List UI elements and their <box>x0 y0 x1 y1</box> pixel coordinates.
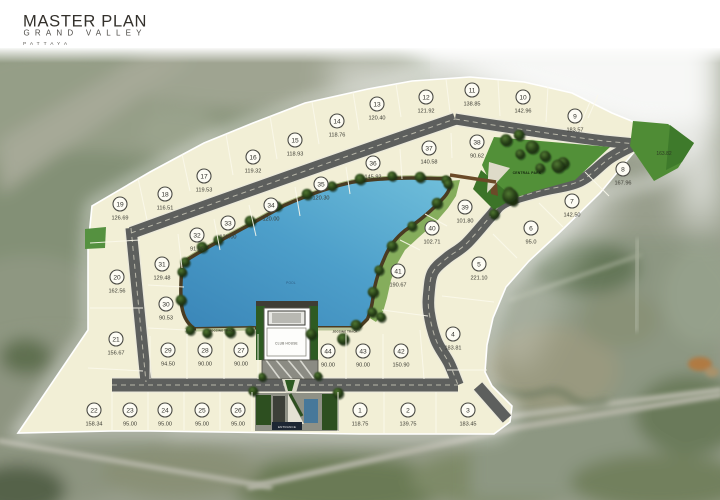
svg-text:138.85: 138.85 <box>463 102 480 108</box>
svg-text:90.00: 90.00 <box>356 363 370 369</box>
svg-text:118.76: 118.76 <box>329 133 346 139</box>
svg-text:7: 7 <box>570 198 574 205</box>
svg-text:156.67: 156.67 <box>107 351 124 357</box>
svg-text:5: 5 <box>477 261 481 268</box>
svg-text:94.50: 94.50 <box>161 362 175 368</box>
svg-text:167.96: 167.96 <box>614 181 631 187</box>
svg-text:22: 22 <box>90 407 98 414</box>
svg-text:19: 19 <box>116 201 124 208</box>
svg-text:40: 40 <box>428 225 436 232</box>
svg-text:95.00: 95.00 <box>195 422 209 428</box>
svg-text:36: 36 <box>369 160 377 167</box>
svg-text:11: 11 <box>469 87 476 94</box>
svg-text:8: 8 <box>621 166 625 173</box>
svg-text:221.10: 221.10 <box>470 276 487 282</box>
svg-text:42: 42 <box>397 348 405 355</box>
svg-text:18: 18 <box>161 191 169 198</box>
svg-text:21: 21 <box>112 336 120 343</box>
svg-text:101.80: 101.80 <box>456 219 473 225</box>
svg-text:10: 10 <box>519 94 527 101</box>
svg-text:24: 24 <box>161 407 169 414</box>
svg-text:6: 6 <box>529 225 533 232</box>
svg-text:14: 14 <box>333 118 341 125</box>
svg-text:90.53: 90.53 <box>159 316 173 322</box>
svg-text:95.00: 95.00 <box>158 422 172 428</box>
svg-text:35: 35 <box>317 181 325 188</box>
svg-text:95.00: 95.00 <box>231 422 245 428</box>
svg-text:3: 3 <box>466 407 470 414</box>
svg-text:120.40: 120.40 <box>368 116 385 122</box>
svg-text:POOL: POOL <box>286 281 296 285</box>
svg-text:190.67: 190.67 <box>389 283 406 289</box>
svg-text:32: 32 <box>193 232 201 239</box>
svg-text:183.81: 183.81 <box>444 346 461 352</box>
svg-text:28: 28 <box>201 347 209 354</box>
svg-text:38: 38 <box>473 139 481 146</box>
svg-text:2: 2 <box>406 407 410 414</box>
svg-text:4: 4 <box>451 331 455 338</box>
svg-text:13: 13 <box>373 101 381 108</box>
svg-text:39: 39 <box>461 204 469 211</box>
svg-text:118.93: 118.93 <box>287 152 304 158</box>
svg-text:120.00: 120.00 <box>262 217 279 223</box>
svg-text:142.96: 142.96 <box>514 109 531 115</box>
svg-text:37: 37 <box>425 145 433 152</box>
svg-text:118.75: 118.75 <box>352 422 369 428</box>
svg-text:PATTAYA: PATTAYA <box>23 41 71 47</box>
svg-text:ENTRANCE: ENTRANCE <box>278 425 296 429</box>
svg-text:116.51: 116.51 <box>157 206 174 212</box>
svg-text:15: 15 <box>291 137 299 144</box>
svg-text:43: 43 <box>359 348 367 355</box>
svg-text:44: 44 <box>324 348 332 355</box>
svg-text:12: 12 <box>422 94 430 101</box>
svg-text:JOGGING TRACK: JOGGING TRACK <box>210 329 235 333</box>
svg-text:31: 31 <box>158 261 166 268</box>
svg-text:126.69: 126.69 <box>111 216 128 222</box>
svg-text:121.92: 121.92 <box>417 109 434 115</box>
svg-text:20: 20 <box>113 274 121 281</box>
svg-text:119.32: 119.32 <box>245 169 262 175</box>
svg-text:30: 30 <box>162 301 170 308</box>
svg-text:163.82: 163.82 <box>656 151 672 157</box>
svg-text:29: 29 <box>164 347 172 354</box>
svg-text:139.75: 139.75 <box>399 422 416 428</box>
svg-text:26: 26 <box>234 407 242 414</box>
svg-text:119.53: 119.53 <box>196 188 213 194</box>
svg-text:23: 23 <box>126 407 134 414</box>
svg-text:25: 25 <box>198 407 206 414</box>
svg-text:91.25: 91.25 <box>190 247 204 253</box>
svg-text:CLUB HOUSE: CLUB HOUSE <box>275 342 298 346</box>
svg-text:27: 27 <box>237 347 245 354</box>
svg-text:1: 1 <box>358 407 362 414</box>
svg-text:34: 34 <box>267 202 275 209</box>
svg-text:183.45: 183.45 <box>459 422 476 428</box>
svg-text:17: 17 <box>200 173 208 180</box>
svg-text:158.34: 158.34 <box>85 422 102 428</box>
svg-text:142.50: 142.50 <box>563 213 580 219</box>
svg-text:95.00: 95.00 <box>123 422 137 428</box>
svg-text:90.00: 90.00 <box>198 362 212 368</box>
svg-text:102.71: 102.71 <box>423 240 440 246</box>
svg-text:120.30: 120.30 <box>312 196 329 202</box>
svg-text:90.00: 90.00 <box>321 363 335 369</box>
svg-text:GRAND VALLEY: GRAND VALLEY <box>24 29 147 38</box>
svg-text:145.92: 145.92 <box>364 175 381 181</box>
svg-text:90.00: 90.00 <box>234 362 248 368</box>
svg-text:150.90: 150.90 <box>392 363 409 369</box>
svg-text:33: 33 <box>224 220 232 227</box>
svg-text:162.56: 162.56 <box>108 289 125 295</box>
svg-text:95.0: 95.0 <box>526 240 537 246</box>
svg-text:120.00: 120.00 <box>219 235 236 241</box>
svg-text:183.57: 183.57 <box>566 128 583 134</box>
svg-text:JOGGING TRACK: JOGGING TRACK <box>333 330 358 334</box>
svg-text:140.58: 140.58 <box>420 160 437 166</box>
svg-text:9: 9 <box>573 113 577 120</box>
svg-text:129.48: 129.48 <box>153 276 170 282</box>
svg-text:CENTRAL PARK: CENTRAL PARK <box>513 171 542 175</box>
svg-text:90.62: 90.62 <box>470 154 484 160</box>
svg-text:16: 16 <box>249 154 257 161</box>
svg-text:41: 41 <box>394 268 402 275</box>
